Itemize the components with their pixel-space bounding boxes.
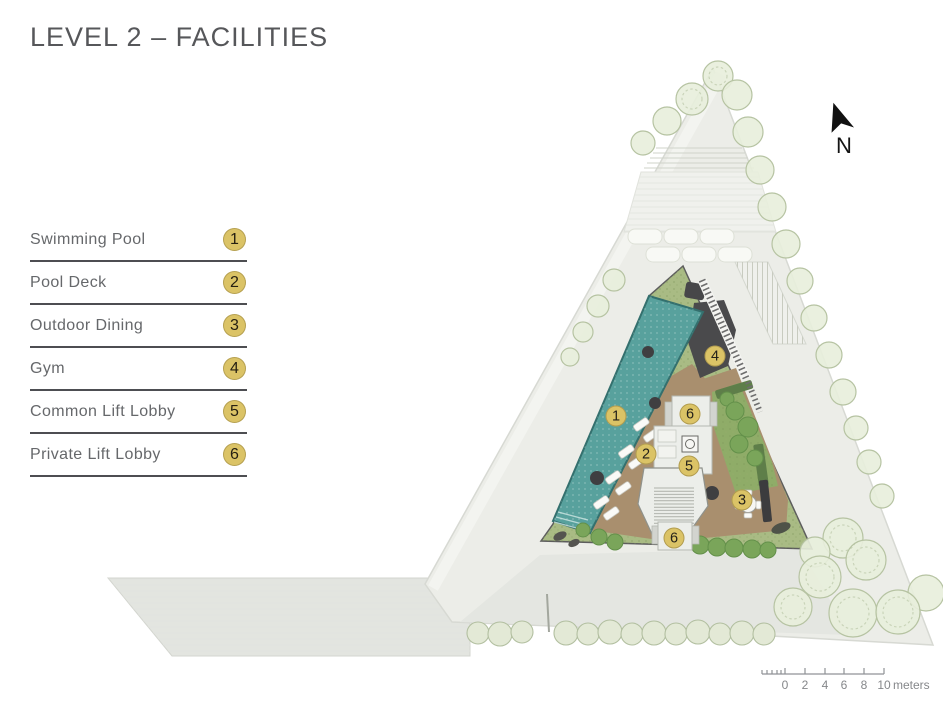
plan-marker-common-lift-lobby: 5	[679, 456, 700, 477]
site-plan-drawing	[0, 0, 943, 717]
plan-marker-swimming-pool: 1	[606, 406, 627, 427]
north-label: N	[836, 133, 853, 159]
scale-unit-label: meters	[893, 678, 930, 692]
north-arrow-icon	[823, 99, 854, 135]
plan-marker-private-lift-lobby-lower: 6	[664, 528, 685, 549]
plan-marker-private-lift-lobby-upper: 6	[680, 404, 701, 425]
scale-tick-label: 2	[802, 678, 809, 692]
scale-tick-label: 8	[861, 678, 868, 692]
scale-bar	[762, 668, 884, 674]
scale-tick-label: 0	[782, 678, 789, 692]
scale-tick-label: 10	[877, 678, 890, 692]
plan-marker-gym: 4	[705, 346, 726, 367]
access-road	[108, 578, 470, 656]
plan-marker-outdoor-dining: 3	[732, 490, 753, 511]
scale-tick-label: 4	[822, 678, 829, 692]
floor-plan-page: LEVEL 2 – FACILITIES Swimming Pool 1 Poo…	[0, 0, 943, 717]
plan-marker-pool-deck: 2	[636, 444, 657, 465]
scale-tick-label: 6	[841, 678, 848, 692]
